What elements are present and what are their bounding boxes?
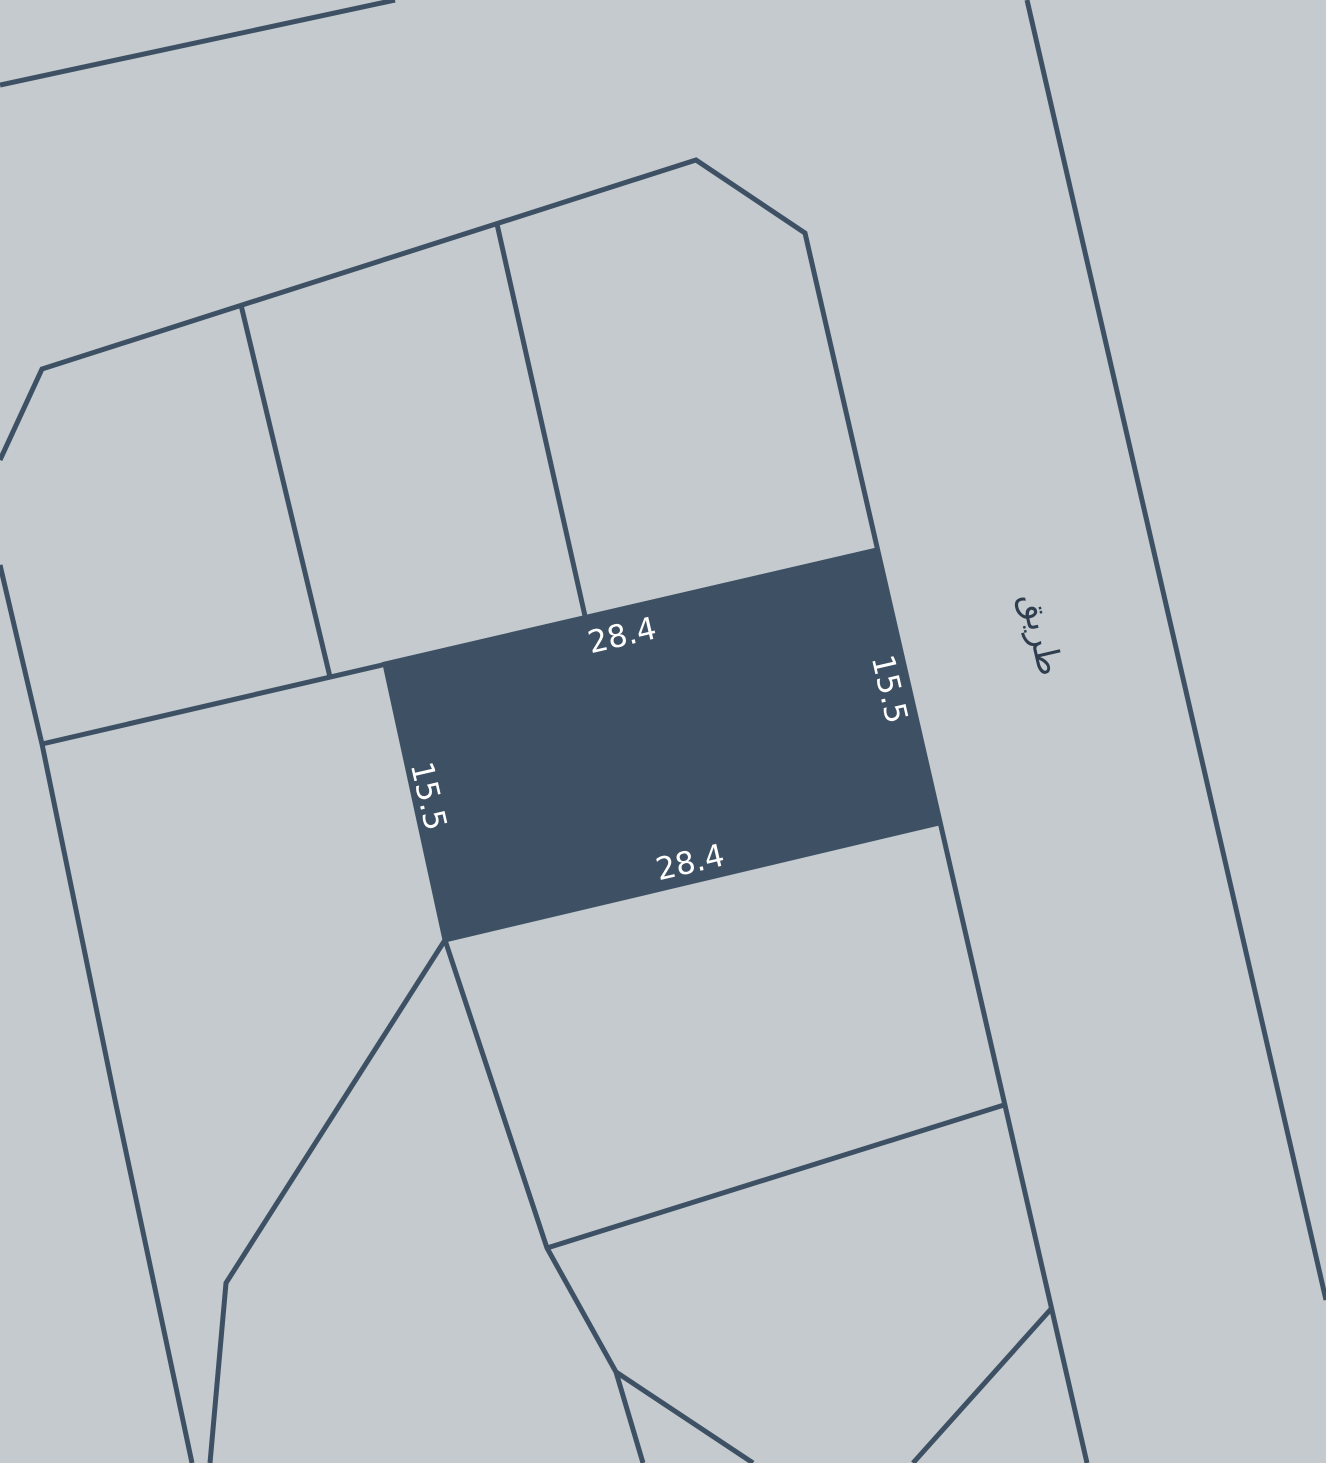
cadastral-map[interactable]: 28.4 28.4 15.5 15.5 طريق	[0, 0, 1326, 1463]
